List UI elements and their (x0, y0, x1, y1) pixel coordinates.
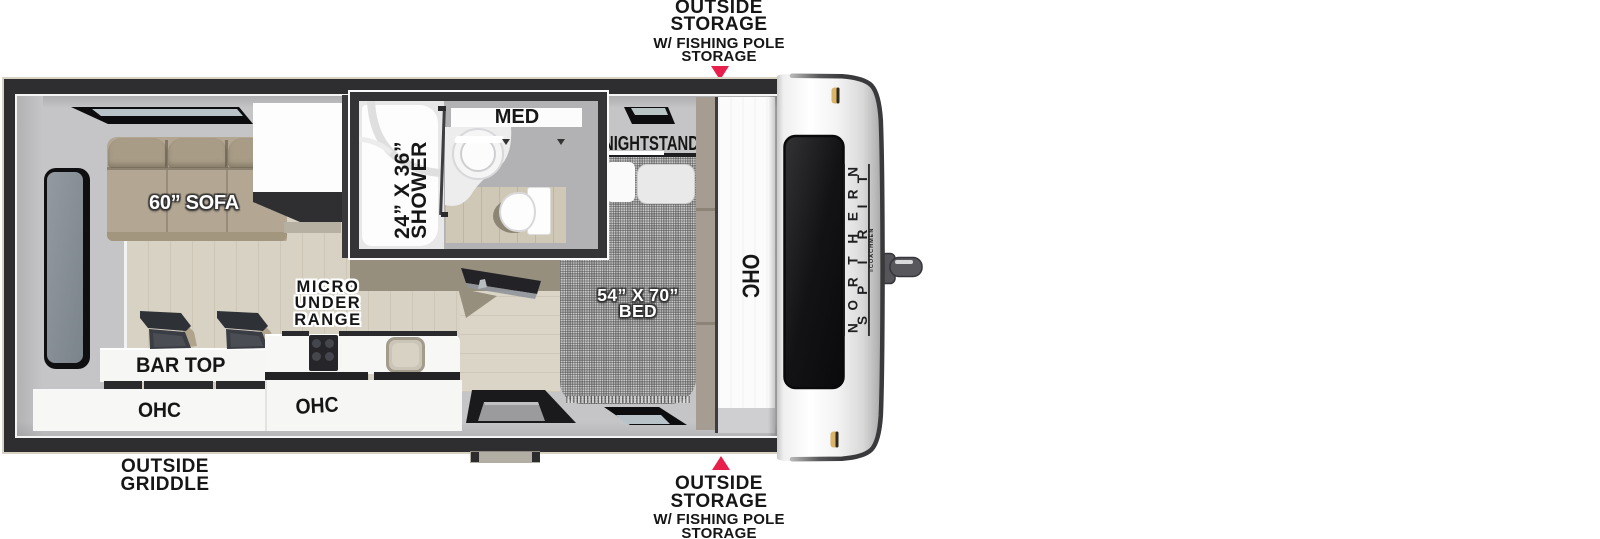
svg-text:OHC: OHC (737, 254, 764, 298)
svg-text:≡COACHMEN: ≡COACHMEN (869, 228, 875, 273)
